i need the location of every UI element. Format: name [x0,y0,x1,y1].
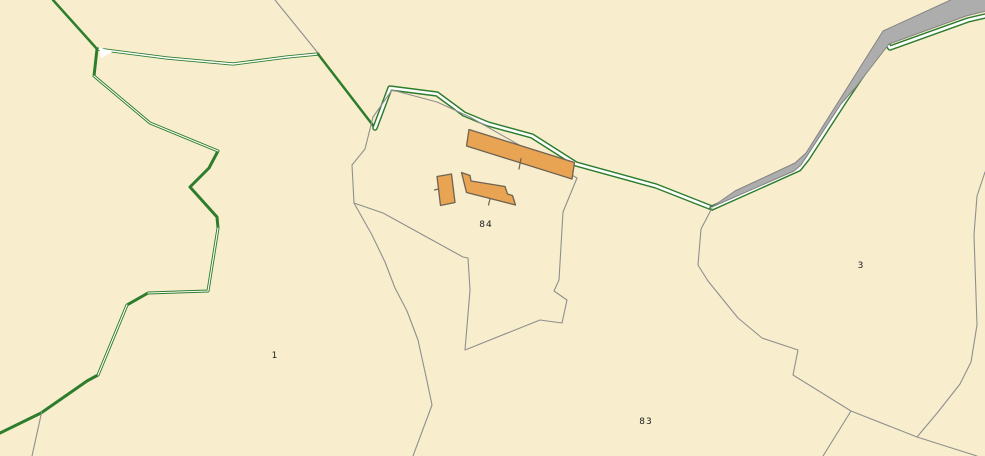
cadastral-map-viewport[interactable]: 1 84 83 3 [0,0,985,456]
map-canvas[interactable]: 1 84 83 3 [0,0,985,456]
parcel-label-84: 84 [479,220,492,230]
parcel-label-1: 1 [272,351,279,361]
parcel-label-3: 3 [858,261,865,271]
building-small-parcel84[interactable] [437,174,455,206]
parcel-label-83: 83 [639,417,652,427]
